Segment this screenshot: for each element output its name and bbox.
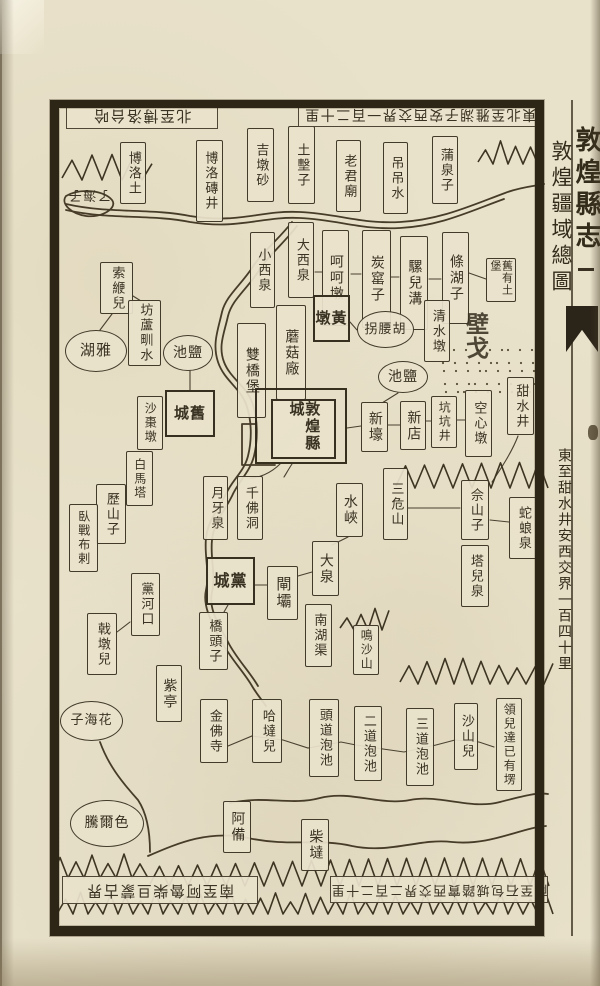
gutter-dash — [578, 268, 594, 271]
ink-smudge — [588, 425, 598, 440]
east-boundary-note: 東至甜水井安西交界一百四十里 — [547, 440, 571, 680]
page-corner-highlight — [0, 0, 44, 54]
page-edge-shadow-left — [0, 0, 14, 986]
page-edge-shadow-bottom — [0, 938, 600, 986]
book-title: 敦煌縣志 — [571, 110, 599, 270]
fishtail-icon — [566, 306, 598, 352]
map-title: 敦煌疆域總圖 — [546, 112, 571, 324]
map-border-frame — [50, 100, 544, 936]
gazetteer-page: 博洛土博洛磚井吉墩砂土墼子老君廟吊吊水蒲泉子了海子小西泉大西泉呵呵墩炭窰子騾兒溝… — [0, 0, 600, 986]
page-fold-line — [0, 0, 2, 986]
